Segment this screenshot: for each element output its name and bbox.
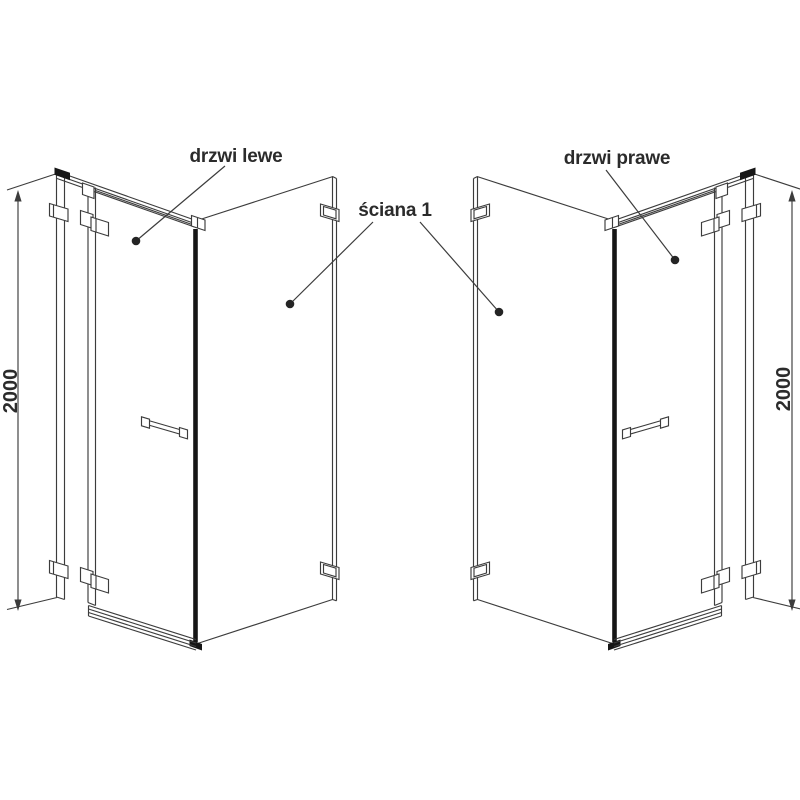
right-height-dimension-label: 2000: [773, 367, 795, 412]
left-enclosure-drawing: [7, 168, 339, 651]
wall-leader-line-right: [420, 222, 499, 312]
right-door-label: drzwi prawe: [564, 148, 671, 169]
right-enclosure-drawing: [471, 168, 800, 651]
wall-leader-dot-right: [495, 308, 504, 317]
diagram-canvas: drzwi lewe drzwi prawe ściana 1 2000 200…: [0, 0, 800, 800]
left-door-leader-dot: [132, 237, 141, 246]
right-door-leader-dot: [671, 256, 680, 265]
wall-leader-line-left: [290, 222, 373, 304]
wall-leader-dot-left: [286, 300, 295, 309]
wall-label: ściana 1: [358, 200, 432, 221]
left-door-label: drzwi lewe: [189, 146, 282, 167]
callouts: [132, 166, 680, 316]
left-height-dimension-label: 2000: [0, 369, 22, 414]
